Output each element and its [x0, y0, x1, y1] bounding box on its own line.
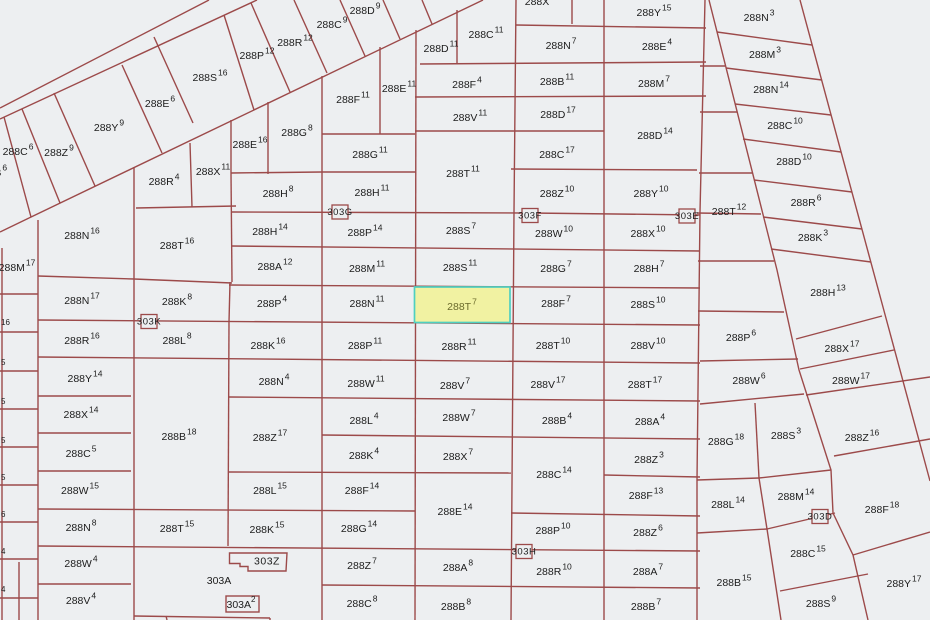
svg-text:5: 5: [1, 397, 6, 406]
svg-text:303A: 303A: [207, 575, 232, 587]
svg-text:5: 5: [1, 436, 6, 445]
svg-text:303D: 303D: [808, 512, 833, 523]
svg-text:288X: 288X: [525, 0, 550, 8]
svg-text:4: 4: [1, 585, 6, 594]
svg-text:303K: 303K: [137, 317, 161, 328]
svg-text:303E: 303E: [675, 211, 699, 222]
svg-text:16: 16: [1, 318, 10, 327]
svg-text:303H: 303H: [512, 547, 537, 558]
svg-text:303G: 303G: [327, 207, 352, 218]
svg-text:4: 4: [1, 547, 6, 556]
svg-text:5: 5: [1, 473, 6, 482]
svg-text:6: 6: [1, 510, 6, 519]
svg-text:303Z: 303Z: [254, 556, 280, 568]
svg-text:5: 5: [1, 358, 6, 367]
svg-text:303F: 303F: [518, 211, 542, 222]
